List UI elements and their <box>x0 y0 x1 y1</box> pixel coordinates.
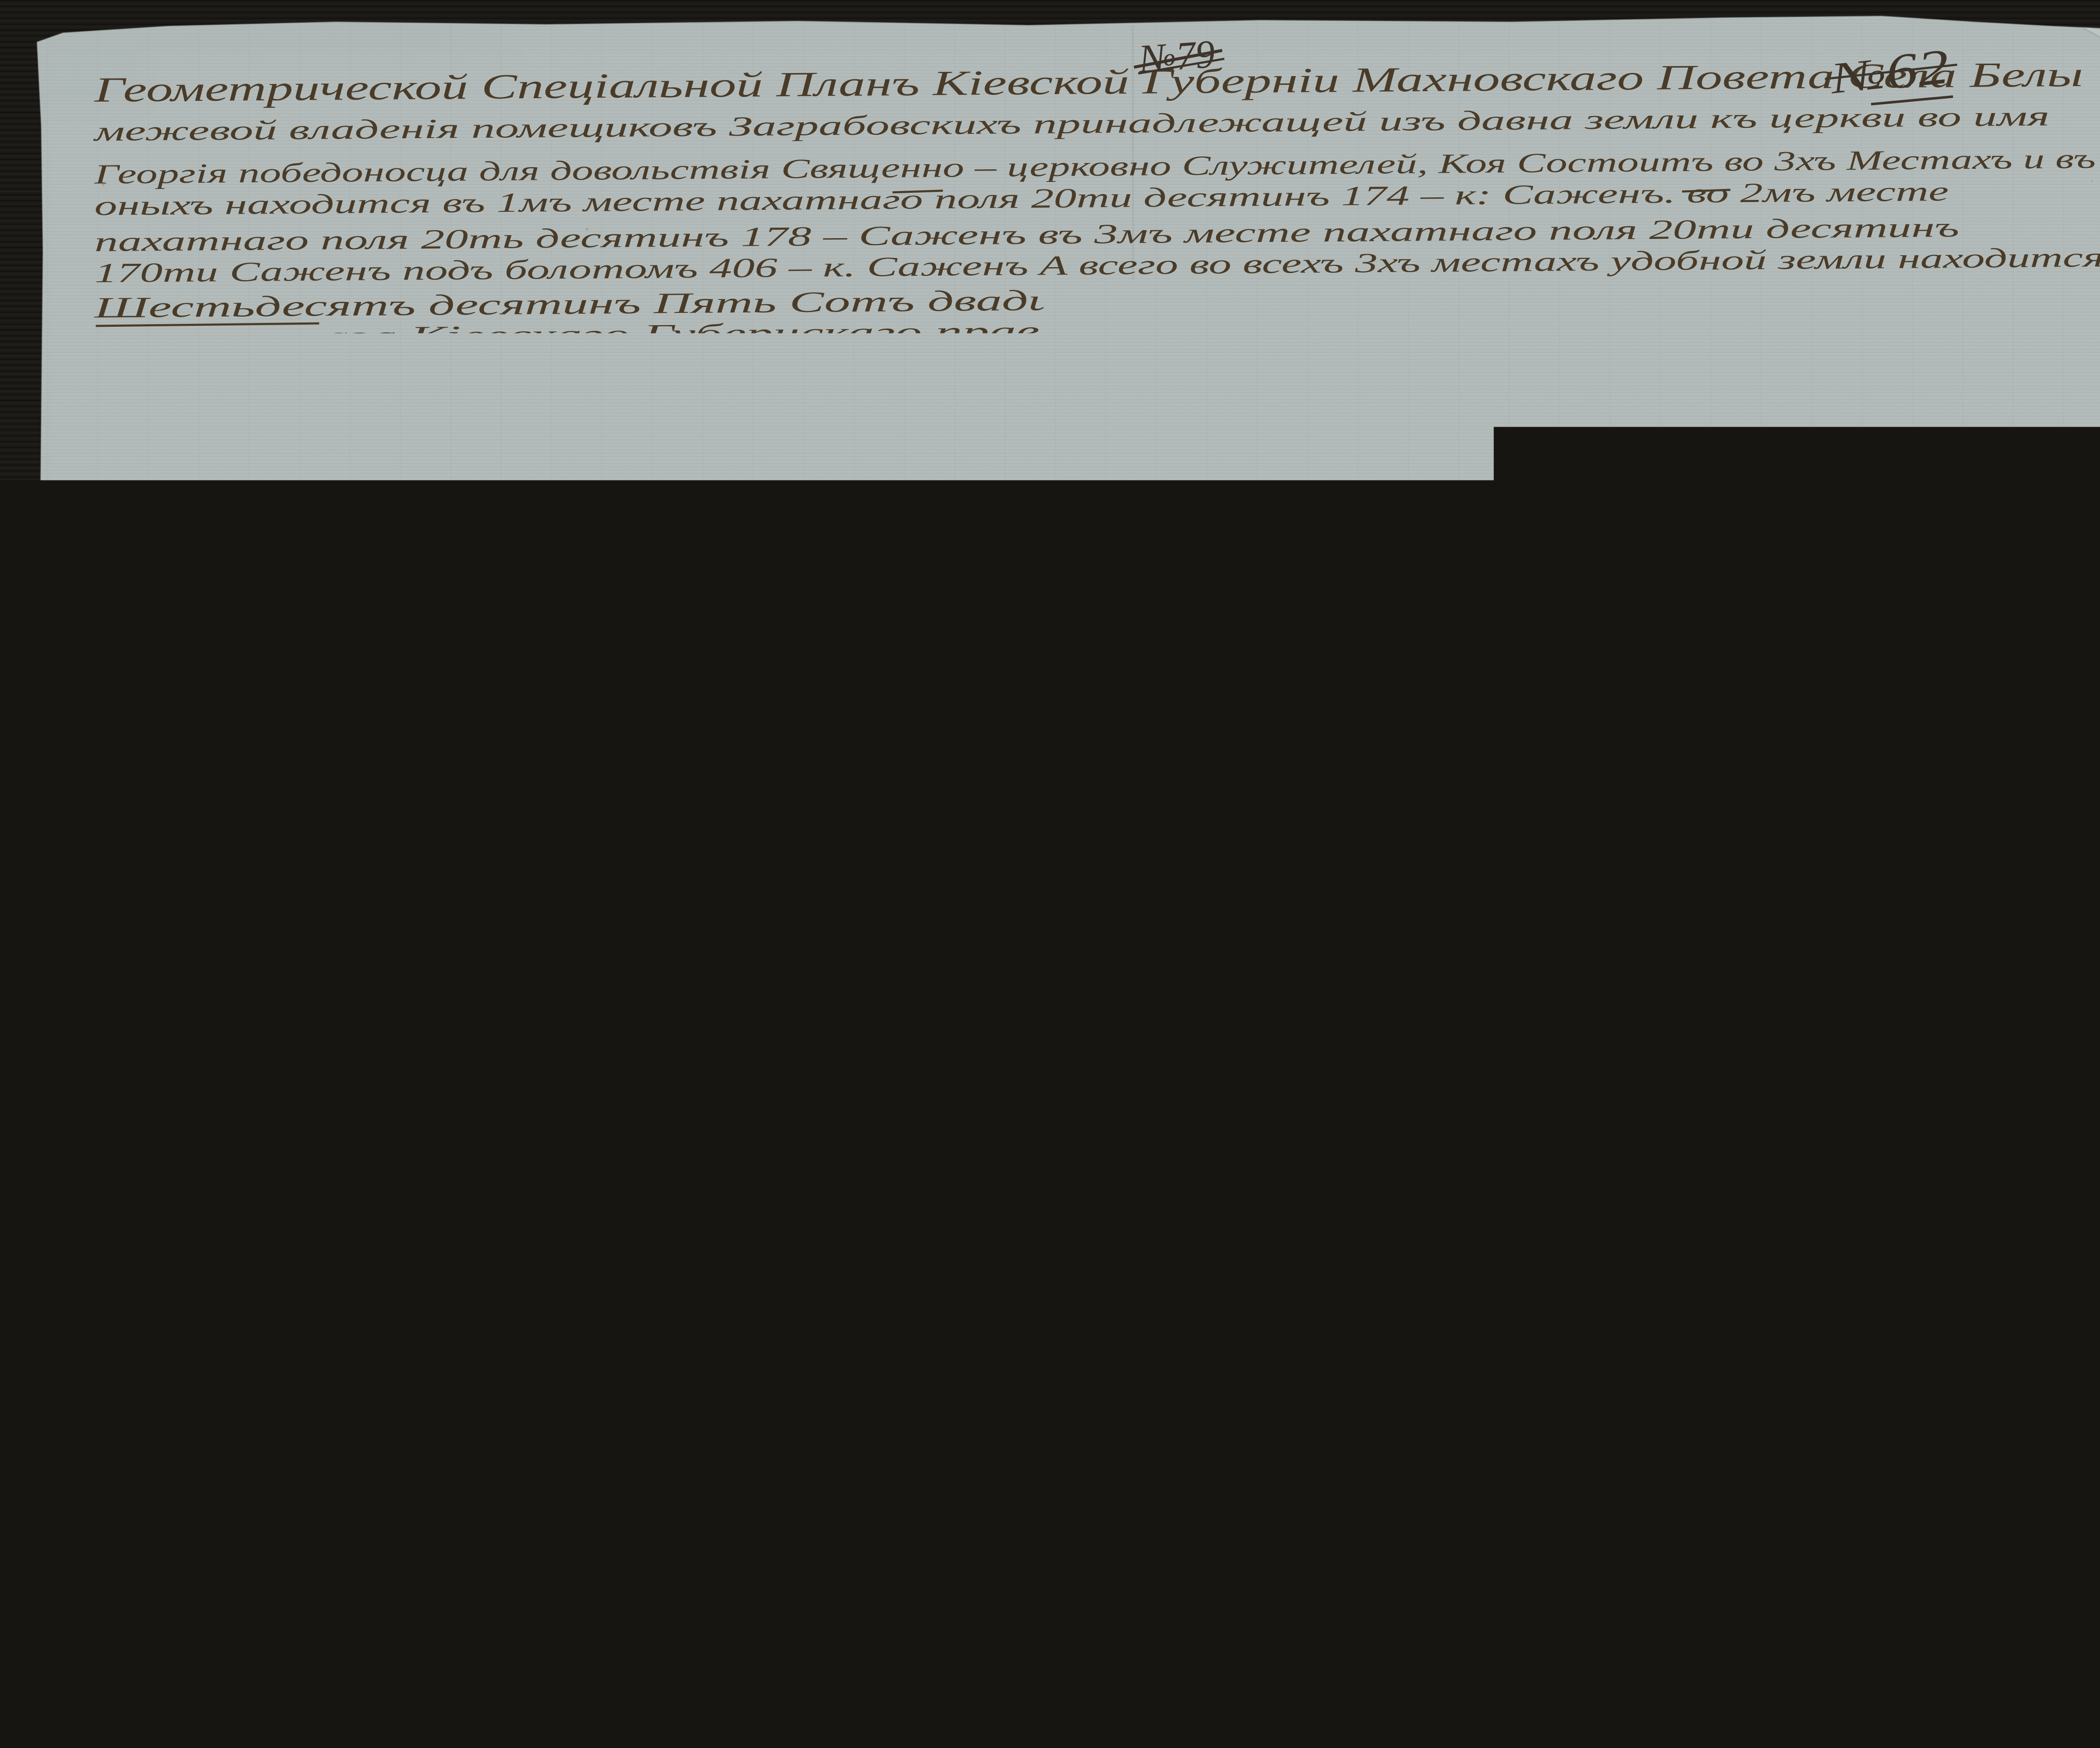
svg-text:Священникъ Левъ Брояновскій: Священникъ Левъ Брояновскій <box>1394 688 1903 723</box>
svg-text:3е: 3е <box>1365 1071 1399 1110</box>
svg-text:№№85: №№85 <box>906 1312 986 1348</box>
svg-text:112: 112 <box>376 945 417 979</box>
svg-text:240: 240 <box>600 1170 641 1201</box>
svg-text:354½: 354½ <box>786 1046 846 1080</box>
svg-text:Со стороны духовной присутство: Со стороны духовной присутствовалъ– <box>1390 651 1991 685</box>
svg-text:3е: 3е <box>1360 1036 1386 1064</box>
svg-text:№№46: №№46 <box>301 1230 378 1263</box>
svg-text:2085: 2085 <box>942 795 996 827</box>
svg-text:136: 136 <box>948 828 988 859</box>
svg-text:2е: 2е <box>926 1048 960 1087</box>
svg-text:№79: №79 <box>1137 31 1216 81</box>
svg-text:108: 108 <box>312 1057 355 1091</box>
svg-text:Махновскаго нижнего Земскаго: Махновскаго нижнего Земскаго <box>1362 572 1814 606</box>
svg-text:Суда Исправникъ Довбносакій: Суда Исправникъ Довбносакій <box>1378 611 1886 646</box>
svg-text:153: 153 <box>537 976 589 1018</box>
svg-text:264: 264 <box>308 1264 349 1295</box>
svg-text:2е: 2е <box>922 1015 947 1043</box>
svg-text:228: 228 <box>1249 940 1292 973</box>
svg-text:136: 136 <box>913 1349 955 1381</box>
svg-text:300: 300 <box>1486 1095 1529 1129</box>
svg-text:С: С <box>58 1534 89 1584</box>
svg-text:178: 178 <box>1470 891 1513 925</box>
